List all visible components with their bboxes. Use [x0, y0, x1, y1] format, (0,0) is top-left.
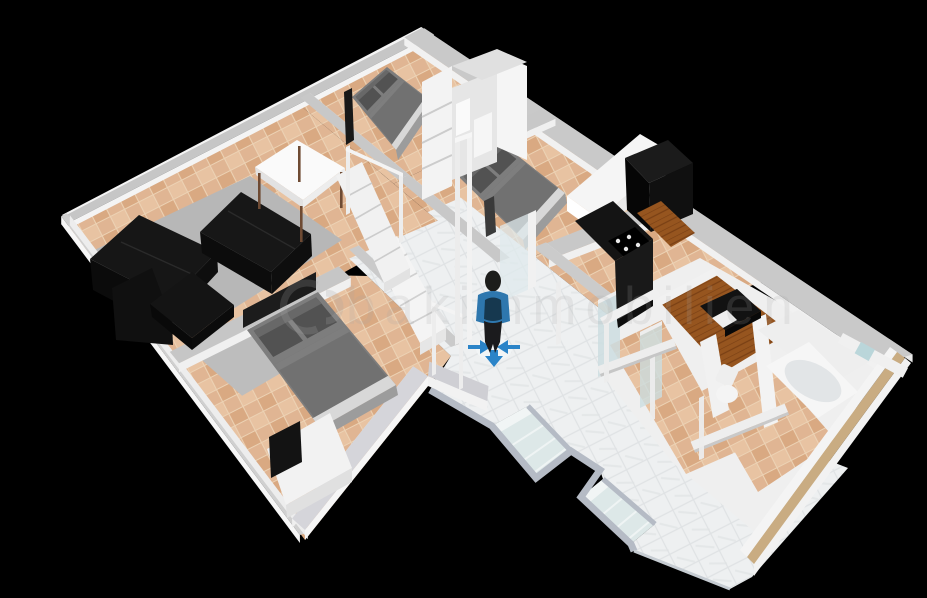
- svg-text:bakimmobilien: bakimmobilien: [346, 277, 802, 336]
